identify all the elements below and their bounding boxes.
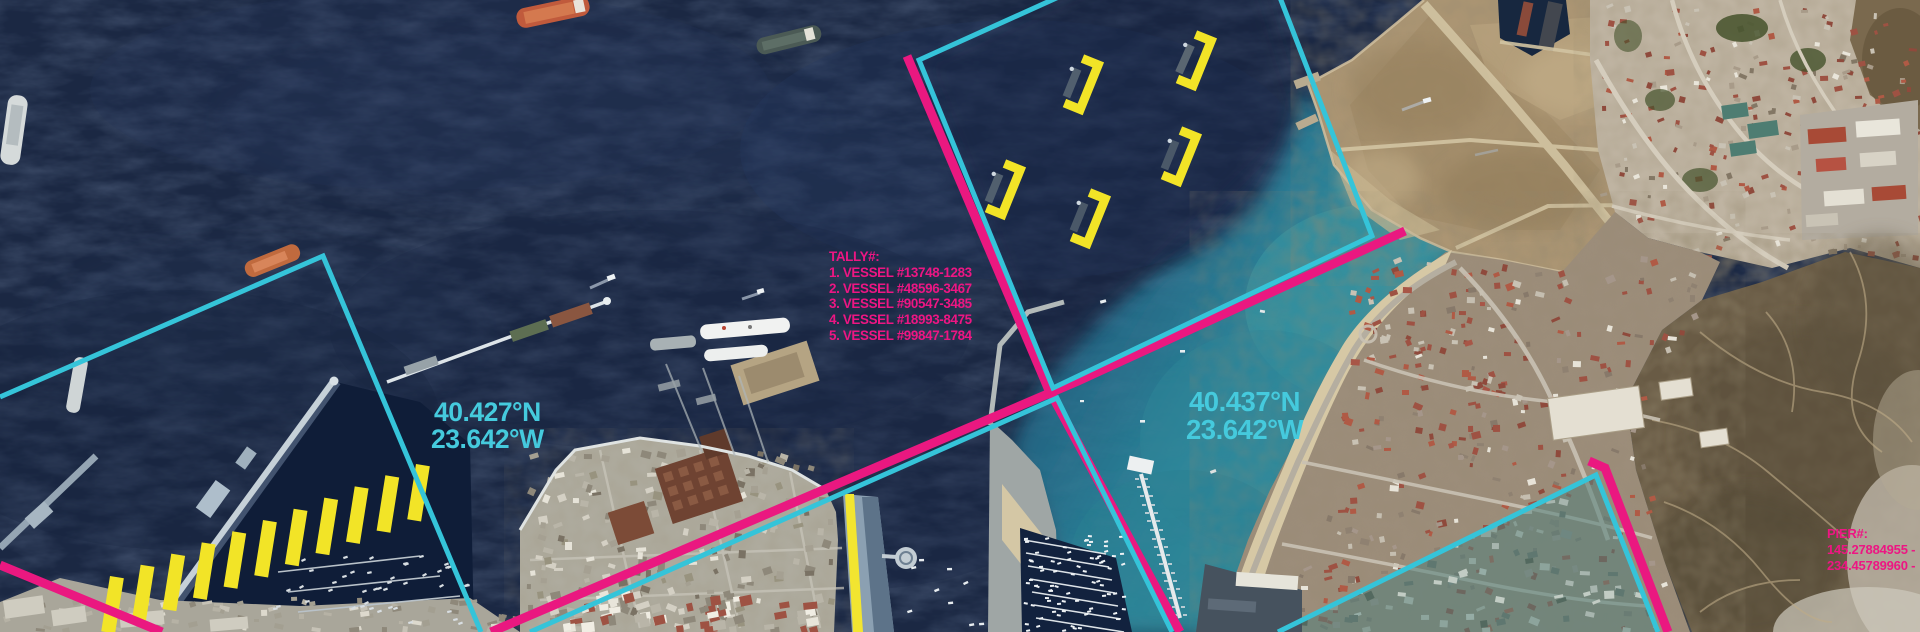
svg-text:3. VESSEL #90547-3485: 3. VESSEL #90547-3485 <box>829 296 973 311</box>
svg-text:4. VESSEL #18993-8475: 4. VESSEL #18993-8475 <box>829 312 973 327</box>
svg-text:145.27884955 -: 145.27884955 - <box>1827 542 1915 557</box>
svg-text:1. VESSEL #13748-1283: 1. VESSEL #13748-1283 <box>829 265 972 280</box>
svg-text:2. VESSEL #48596-3467: 2. VESSEL #48596-3467 <box>829 281 972 296</box>
svg-text:40.437°N: 40.437°N <box>1189 386 1300 417</box>
svg-text:234.45789960 -: 234.45789960 - <box>1827 558 1915 573</box>
svg-text:TALLY#:: TALLY#: <box>829 249 879 264</box>
svg-text:23.642°W: 23.642°W <box>1186 414 1304 445</box>
svg-text:PIER#:: PIER#: <box>1827 526 1868 541</box>
svg-text:40.427°N: 40.427°N <box>434 397 541 427</box>
svg-text:23.642°W: 23.642°W <box>431 424 544 454</box>
svg-text:5. VESSEL #99847-1784: 5. VESSEL #99847-1784 <box>829 328 973 343</box>
